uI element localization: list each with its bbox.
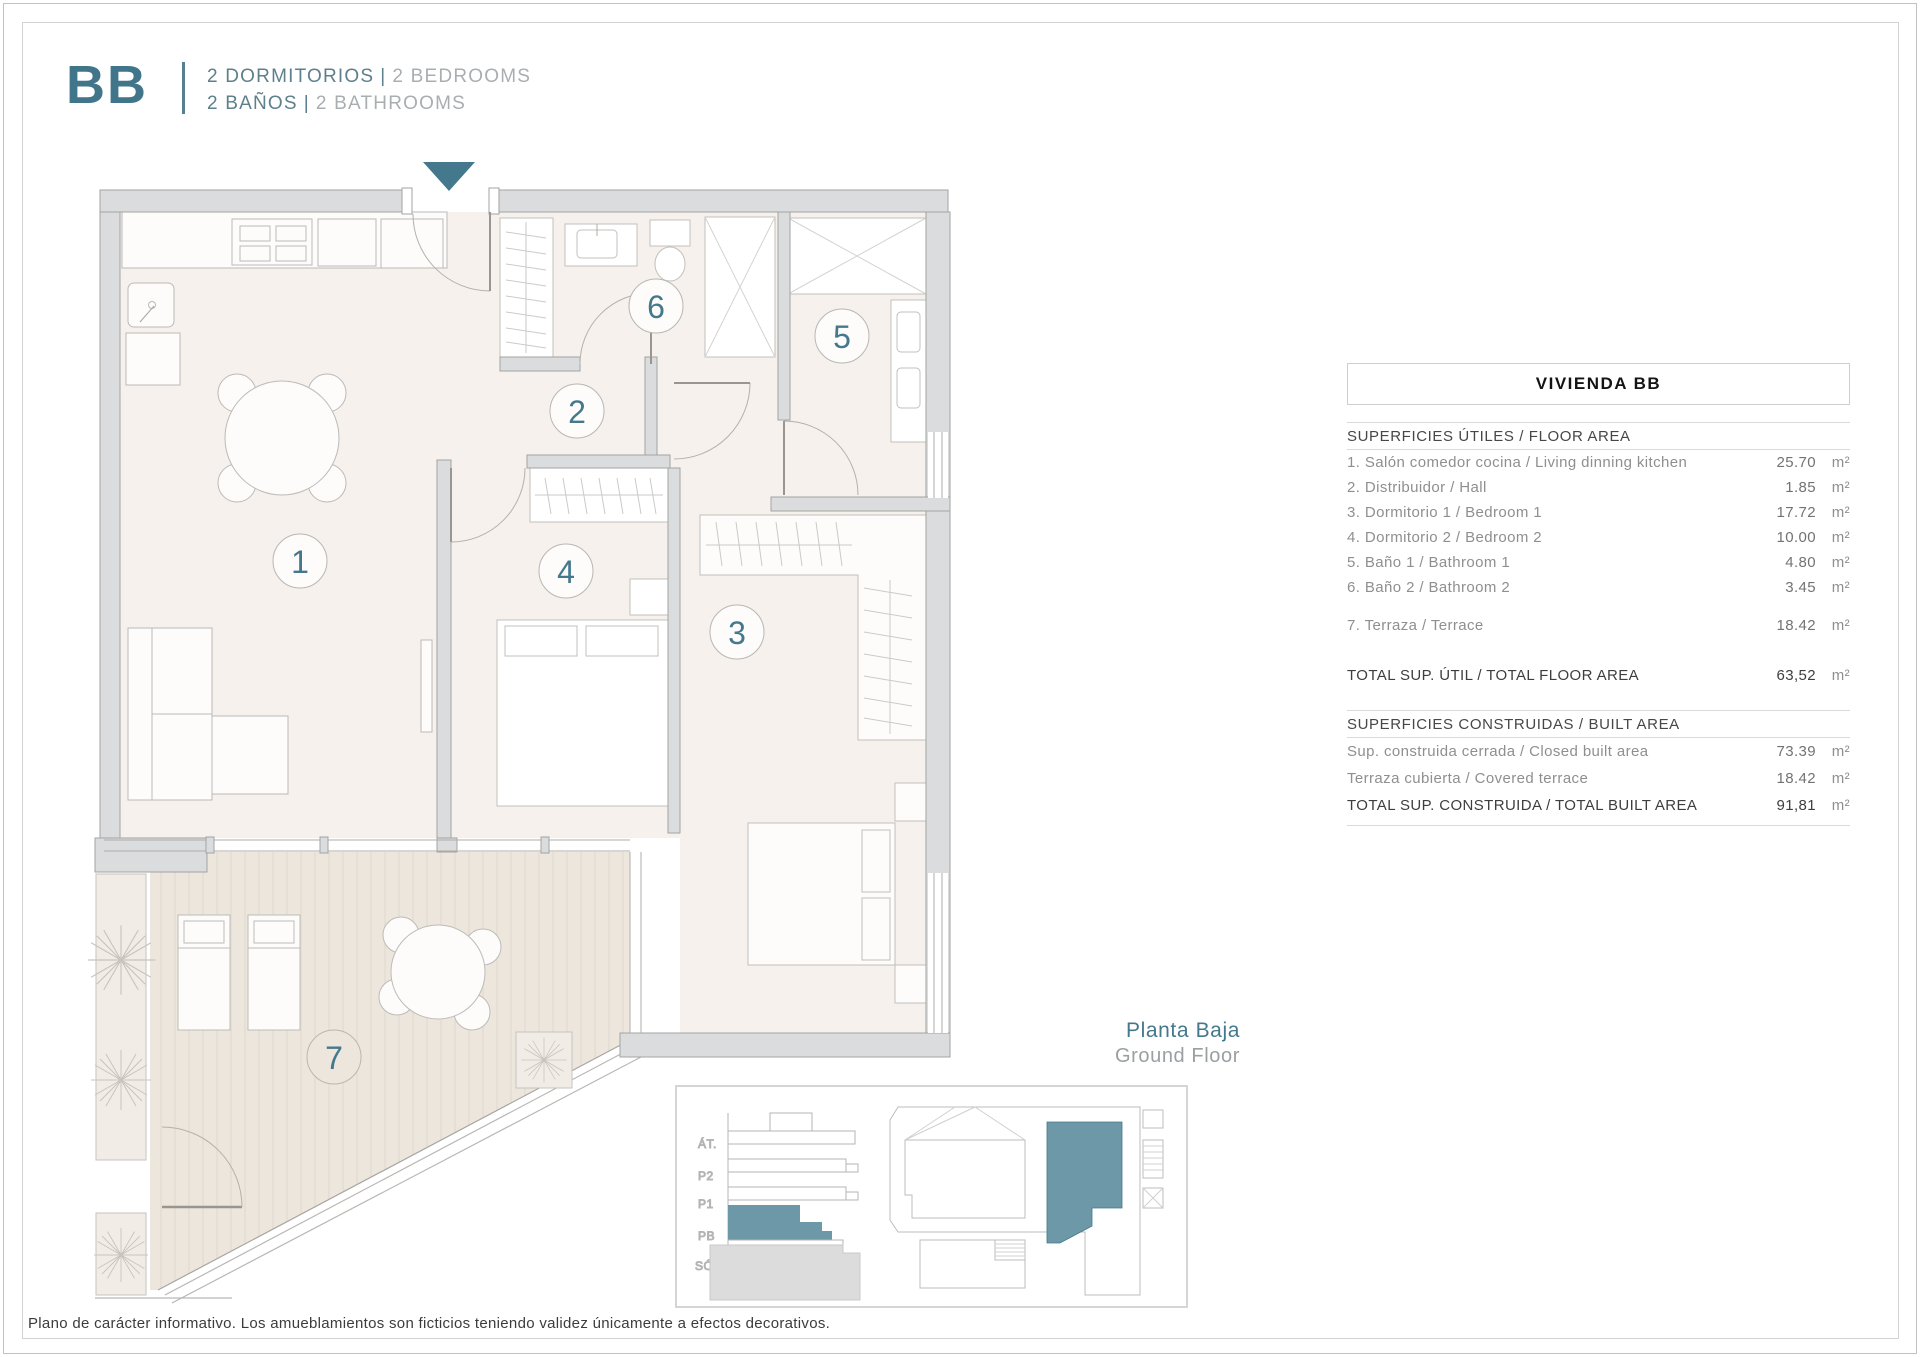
svg-text:PB: PB: [698, 1229, 715, 1243]
svg-text:2: 2: [568, 394, 586, 430]
divider: [1347, 825, 1850, 826]
built-area-rows: Sup. construida cerrada / Closed built a…: [1347, 738, 1850, 792]
table-row: 4. Dormitorio 2 / Bedroom 2 10.00 m²: [1347, 525, 1850, 550]
room-label-4: 4: [539, 544, 593, 598]
svg-text:7: 7: [325, 1040, 343, 1076]
room-label-1: 1: [273, 534, 327, 588]
svg-text:4: 4: [557, 554, 575, 590]
entrance-frame: [402, 188, 499, 214]
tv-unit: [421, 640, 432, 732]
header-divider: [182, 62, 185, 114]
plan-sheet: BB 2 DORMITORIOS|2 BEDROOMS 2 BAÑOS|2 BA…: [0, 0, 1920, 1357]
room-label-6: 6: [629, 279, 683, 333]
table-row: 5. Baño 1 / Bathroom 1 4.80 m²: [1347, 550, 1850, 575]
table-row: Sup. construida cerrada / Closed built a…: [1347, 738, 1850, 765]
table-row: 3. Dormitorio 1 / Bedroom 1 17.72 m²: [1347, 500, 1850, 525]
svg-text:P2: P2: [698, 1169, 714, 1183]
room-label-5: 5: [815, 309, 869, 363]
area-table: VIVIENDA BB SUPERFICIES ÚTILES / FLOOR A…: [1347, 363, 1850, 826]
floor-area-header: SUPERFICIES ÚTILES / FLOOR AREA: [1347, 423, 1850, 449]
entrance-arrow-icon: [423, 162, 475, 191]
room-label-3: 3: [710, 605, 764, 659]
unit-logo: BB: [66, 56, 148, 114]
svg-text:P1: P1: [698, 1197, 714, 1211]
svg-text:ÁT.: ÁT.: [698, 1136, 717, 1151]
disclaimer: Plano de carácter informativo. Los amueb…: [28, 1315, 830, 1332]
svg-text:3: 3: [728, 615, 746, 651]
built-area-header: SUPERFICIES CONSTRUIDAS / BUILT AREA: [1347, 711, 1850, 737]
table-title-box: VIVIENDA BB: [1347, 363, 1850, 405]
header: BB 2 DORMITORIOS|2 BEDROOMS 2 BAÑOS|2 BA…: [66, 56, 531, 117]
table-title: VIVIENDA BB: [1536, 374, 1661, 394]
svg-text:5: 5: [833, 319, 851, 355]
table-row: 6. Baño 2 / Bathroom 2 3.45 m²: [1347, 575, 1850, 600]
total-built-area-row: TOTAL SUP. CONSTRUIDA / TOTAL BUILT AREA…: [1347, 792, 1850, 819]
terrace-row: 7. Terraza / Terrace 18.42 m²: [1347, 613, 1850, 638]
header-subtitle: 2 DORMITORIOS|2 BEDROOMS 2 BAÑOS|2 BATHR…: [207, 63, 531, 117]
room-label-7: 7: [307, 1030, 361, 1084]
ground: [710, 1245, 860, 1300]
svg-text:1: 1: [291, 544, 309, 580]
floor-name-en: Ground Floor: [980, 1045, 1240, 1068]
room-label-2: 2: [550, 384, 604, 438]
floor-area-rows: 1. Salón comedor cocina / Living dinning…: [1347, 450, 1850, 600]
entry-closet: [500, 218, 553, 357]
table-row: 1. Salón comedor cocina / Living dinning…: [1347, 450, 1850, 475]
dining-table: [218, 374, 346, 502]
table-row: 2. Distribuidor / Hall 1.85 m²: [1347, 475, 1850, 500]
location-diagram: ÁT. P2 P1 PB SÓT.: [675, 1085, 1188, 1308]
terrace-table: [379, 917, 501, 1030]
total-floor-area-row: TOTAL SUP. ÚTIL / TOTAL FLOOR AREA 63,52…: [1347, 662, 1850, 689]
floor-name-es: Planta Baja: [980, 1019, 1240, 1043]
svg-text:6: 6: [647, 289, 665, 325]
floor-name: Planta Baja Ground Floor: [980, 1019, 1240, 1068]
bedrooms-line: 2 DORMITORIOS|2 BEDROOMS: [207, 63, 531, 90]
table-row: Terraza cubierta / Covered terrace 18.42…: [1347, 765, 1850, 792]
bathrooms-line: 2 BAÑOS|2 BATHROOMS: [207, 90, 531, 117]
